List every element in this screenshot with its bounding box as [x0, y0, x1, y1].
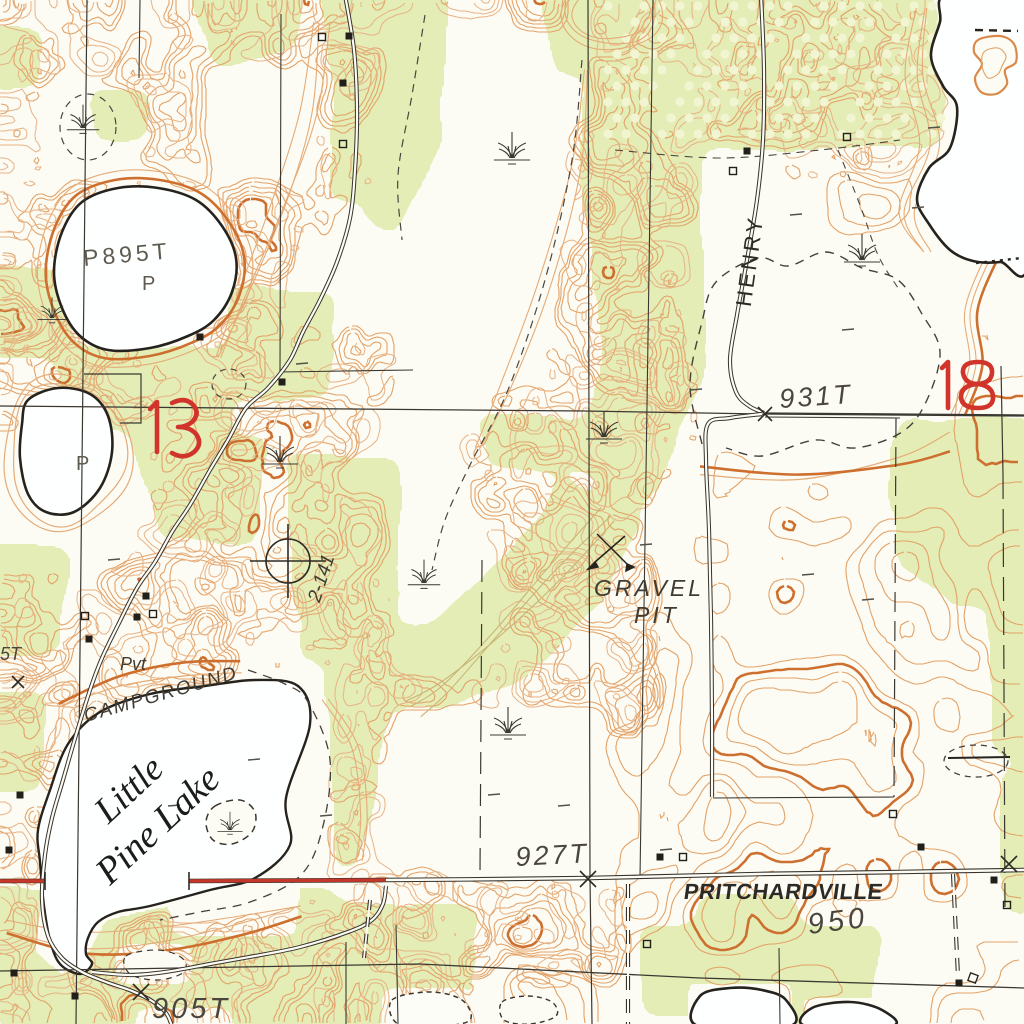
svg-text:Pvt: Pvt: [120, 654, 147, 674]
svg-text:PIT: PIT: [634, 602, 679, 628]
svg-text:P: P: [76, 453, 89, 475]
svg-text:P: P: [142, 273, 155, 295]
svg-text:905T: 905T: [152, 993, 230, 1024]
svg-text:GRAVEL: GRAVEL: [594, 575, 704, 601]
svg-text:927T: 927T: [515, 838, 590, 872]
svg-text:PRITCHARDVILLE: PRITCHARDVILLE: [682, 879, 884, 904]
svg-text:931T: 931T: [778, 379, 853, 414]
svg-text:5T: 5T: [0, 644, 23, 664]
